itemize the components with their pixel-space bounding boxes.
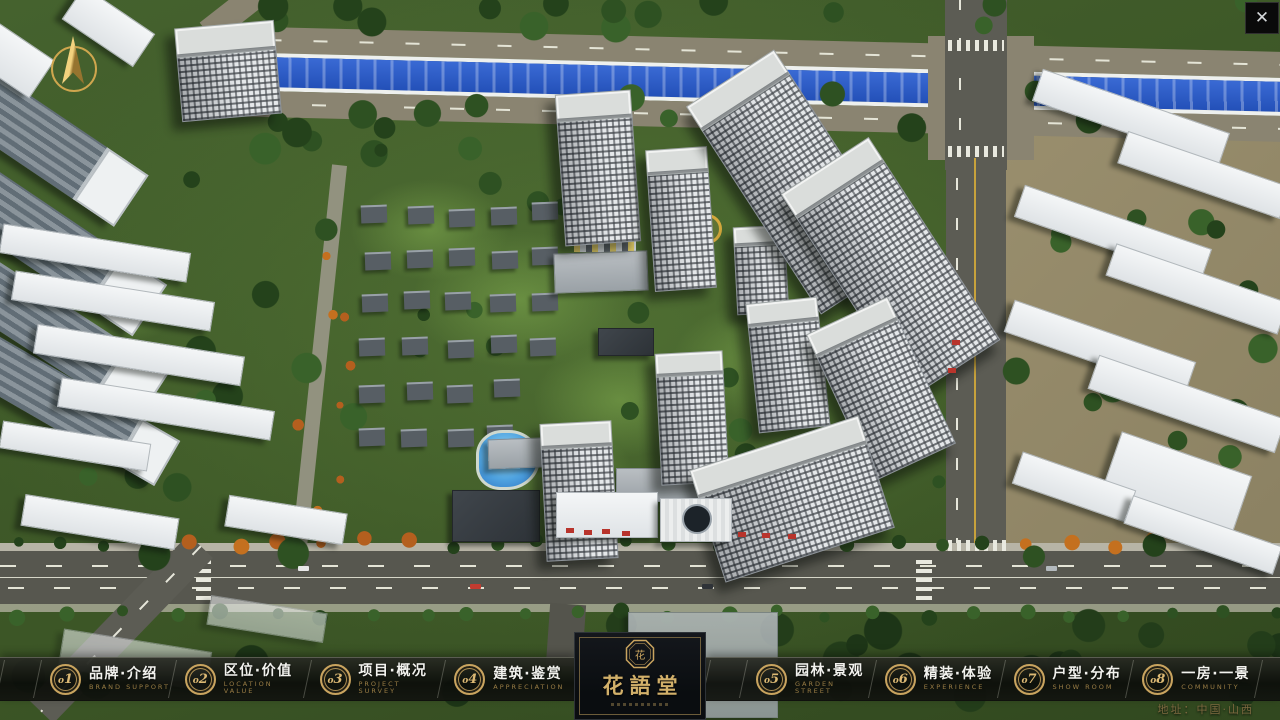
nav-sublabel: BRAND SUPPORT	[89, 684, 170, 691]
courtyard-house	[448, 340, 475, 359]
courtyard-house	[530, 337, 557, 356]
red-canopy	[952, 340, 960, 345]
nav-sublabel: EXPERIENCE	[924, 684, 993, 691]
car	[298, 566, 309, 571]
masterplan-viewport: ✕ o1品牌·介绍BRAND SUPPORTo2区位·价值LOCATION VA…	[0, 0, 1280, 720]
car	[702, 584, 713, 589]
residential-tower	[645, 146, 717, 292]
courtyard-house	[359, 427, 386, 446]
nav-item-o1[interactable]: o1品牌·介绍BRAND SUPPORT	[37, 658, 172, 700]
sidewalk	[0, 604, 1280, 612]
project-name: 花語堂	[597, 670, 684, 700]
red-canopy	[738, 532, 746, 537]
nav-sublabel: GARDEN STREET	[795, 681, 872, 694]
clubhouse-roof	[452, 490, 540, 542]
crosswalk	[948, 40, 1004, 51]
courtyard-house	[361, 294, 388, 313]
tower-roof	[655, 350, 724, 378]
car	[1046, 566, 1057, 571]
nav-number-badge-icon: o2	[185, 664, 216, 695]
nav-item-o6[interactable]: o6精装·体验EXPERIENCE	[872, 658, 1001, 700]
nav-item-o8[interactable]: o8一房·一景COMMUNITY	[1129, 658, 1258, 700]
nav-number: o4	[462, 673, 477, 686]
tower-roof	[539, 420, 612, 450]
nav-item-o2[interactable]: o2区位·价值LOCATION VALUE	[172, 658, 307, 700]
bottom-navigation-right: o5园林·景观GARDEN STREETo6精装·体验EXPERIENCEo7户…	[706, 657, 1280, 701]
close-button[interactable]: ✕	[1245, 2, 1279, 34]
courtyard-house	[402, 337, 429, 356]
nav-number: o2	[193, 673, 208, 686]
crosswalk	[948, 146, 1004, 157]
entrance-emblem	[682, 504, 712, 534]
courtyard-house	[491, 335, 518, 354]
nav-sublabel: LOCATION VALUE	[224, 681, 307, 694]
aerial-masterplan-render	[0, 0, 1280, 720]
courtyard-house	[359, 338, 386, 357]
east-avenue	[946, 158, 1006, 590]
nav-label: 建筑·鉴赏	[493, 667, 564, 681]
nav-item-o4[interactable]: o4建筑·鉴赏APPRECIATION	[441, 658, 576, 700]
courtyard-house	[406, 382, 433, 401]
courtyard-house	[532, 292, 559, 311]
red-canopy	[948, 368, 956, 373]
nav-item-o3[interactable]: o3项目·概况PROJECT SURVEY	[307, 658, 442, 700]
courtyard-house	[494, 378, 521, 397]
courtyard-house	[408, 206, 435, 225]
address-text: 地址：中国·山西	[1158, 701, 1255, 717]
city-tower	[174, 20, 282, 122]
courtyard-house	[407, 250, 434, 269]
nav-sublabel: APPRECIATION	[493, 684, 564, 691]
red-canopy	[788, 534, 796, 539]
nav-label: 户型·分布	[1053, 667, 1122, 681]
svg-text:花: 花	[635, 649, 646, 662]
nav-spacer	[706, 658, 743, 700]
courtyard-house	[364, 252, 391, 271]
courtyard-house	[358, 385, 385, 404]
residential-tower	[745, 297, 830, 434]
nav-item-o5[interactable]: o5园林·景观GARDEN STREET	[743, 658, 872, 700]
red-canopy	[584, 530, 592, 535]
courtyard-house	[445, 292, 472, 311]
nav-label: 园林·景观	[795, 664, 872, 678]
courtyard-house	[532, 202, 559, 221]
nav-item-o7[interactable]: o7户型·分布SHOW ROOM	[1001, 658, 1130, 700]
courtyard-house	[447, 385, 474, 404]
red-canopy	[566, 528, 574, 533]
crosswalk	[948, 540, 1006, 551]
bottom-navigation-left: o1品牌·介绍BRAND SUPPORTo2区位·价值LOCATION VALU…	[0, 657, 576, 701]
logo-seal-icon: 花	[625, 639, 655, 669]
nav-sublabel: PROJECT SURVEY	[359, 681, 442, 694]
pavilion-roof	[598, 328, 654, 356]
courtyard-house	[401, 428, 428, 447]
nav-number-badge-icon: o3	[320, 664, 351, 695]
nav-number-badge-icon: o5	[756, 664, 787, 695]
nav-number-badge-icon: o4	[454, 664, 485, 695]
compass-north-icon	[48, 34, 98, 90]
crosswalk	[916, 555, 932, 600]
courtyard-house	[449, 209, 476, 228]
nav-number: o6	[893, 673, 908, 686]
red-canopy	[762, 533, 770, 538]
nav-label: 精装·体验	[924, 667, 993, 681]
nav-spacer	[1258, 658, 1280, 700]
nav-number: o1	[58, 673, 73, 686]
residential-tower	[539, 420, 618, 562]
nav-number-badge-icon: o1	[50, 664, 81, 695]
courtyard-house	[490, 293, 517, 312]
courtyard-house	[491, 207, 518, 226]
red-canopy	[602, 529, 610, 534]
nav-spacer	[0, 658, 37, 700]
nav-number: o3	[327, 673, 342, 686]
nav-label: 项目·概况	[359, 664, 442, 678]
nav-label: 品牌·介绍	[89, 667, 170, 681]
nav-label: 区位·价值	[224, 664, 307, 678]
project-logo-panel[interactable]: 花 花語堂	[574, 632, 706, 720]
logo-subtitle-rule	[611, 703, 669, 706]
courtyard-house	[448, 428, 475, 447]
north-avenue	[945, 0, 1007, 170]
red-canopy	[622, 531, 630, 536]
tower-facade	[557, 117, 641, 246]
nav-number-badge-icon: o7	[1014, 664, 1045, 695]
nav-number-badge-icon: o8	[1142, 664, 1173, 695]
nav-label: 一房·一景	[1181, 667, 1250, 681]
nav-sublabel: COMMUNITY	[1181, 684, 1250, 691]
courtyard-house	[404, 291, 431, 310]
tower-facade	[177, 50, 282, 122]
nav-number: o7	[1021, 673, 1036, 686]
nav-number: o8	[1150, 673, 1165, 686]
nav-sublabel: SHOW ROOM	[1053, 684, 1122, 691]
courtyard-house	[492, 251, 519, 270]
residential-tower	[555, 90, 641, 247]
midrise-slab	[553, 250, 648, 293]
tower-facade	[647, 172, 717, 292]
car	[470, 584, 481, 589]
courtyard-house	[448, 248, 475, 267]
courtyard-house	[361, 204, 388, 223]
nav-number: o5	[764, 673, 779, 686]
nav-number-badge-icon: o6	[885, 664, 916, 695]
